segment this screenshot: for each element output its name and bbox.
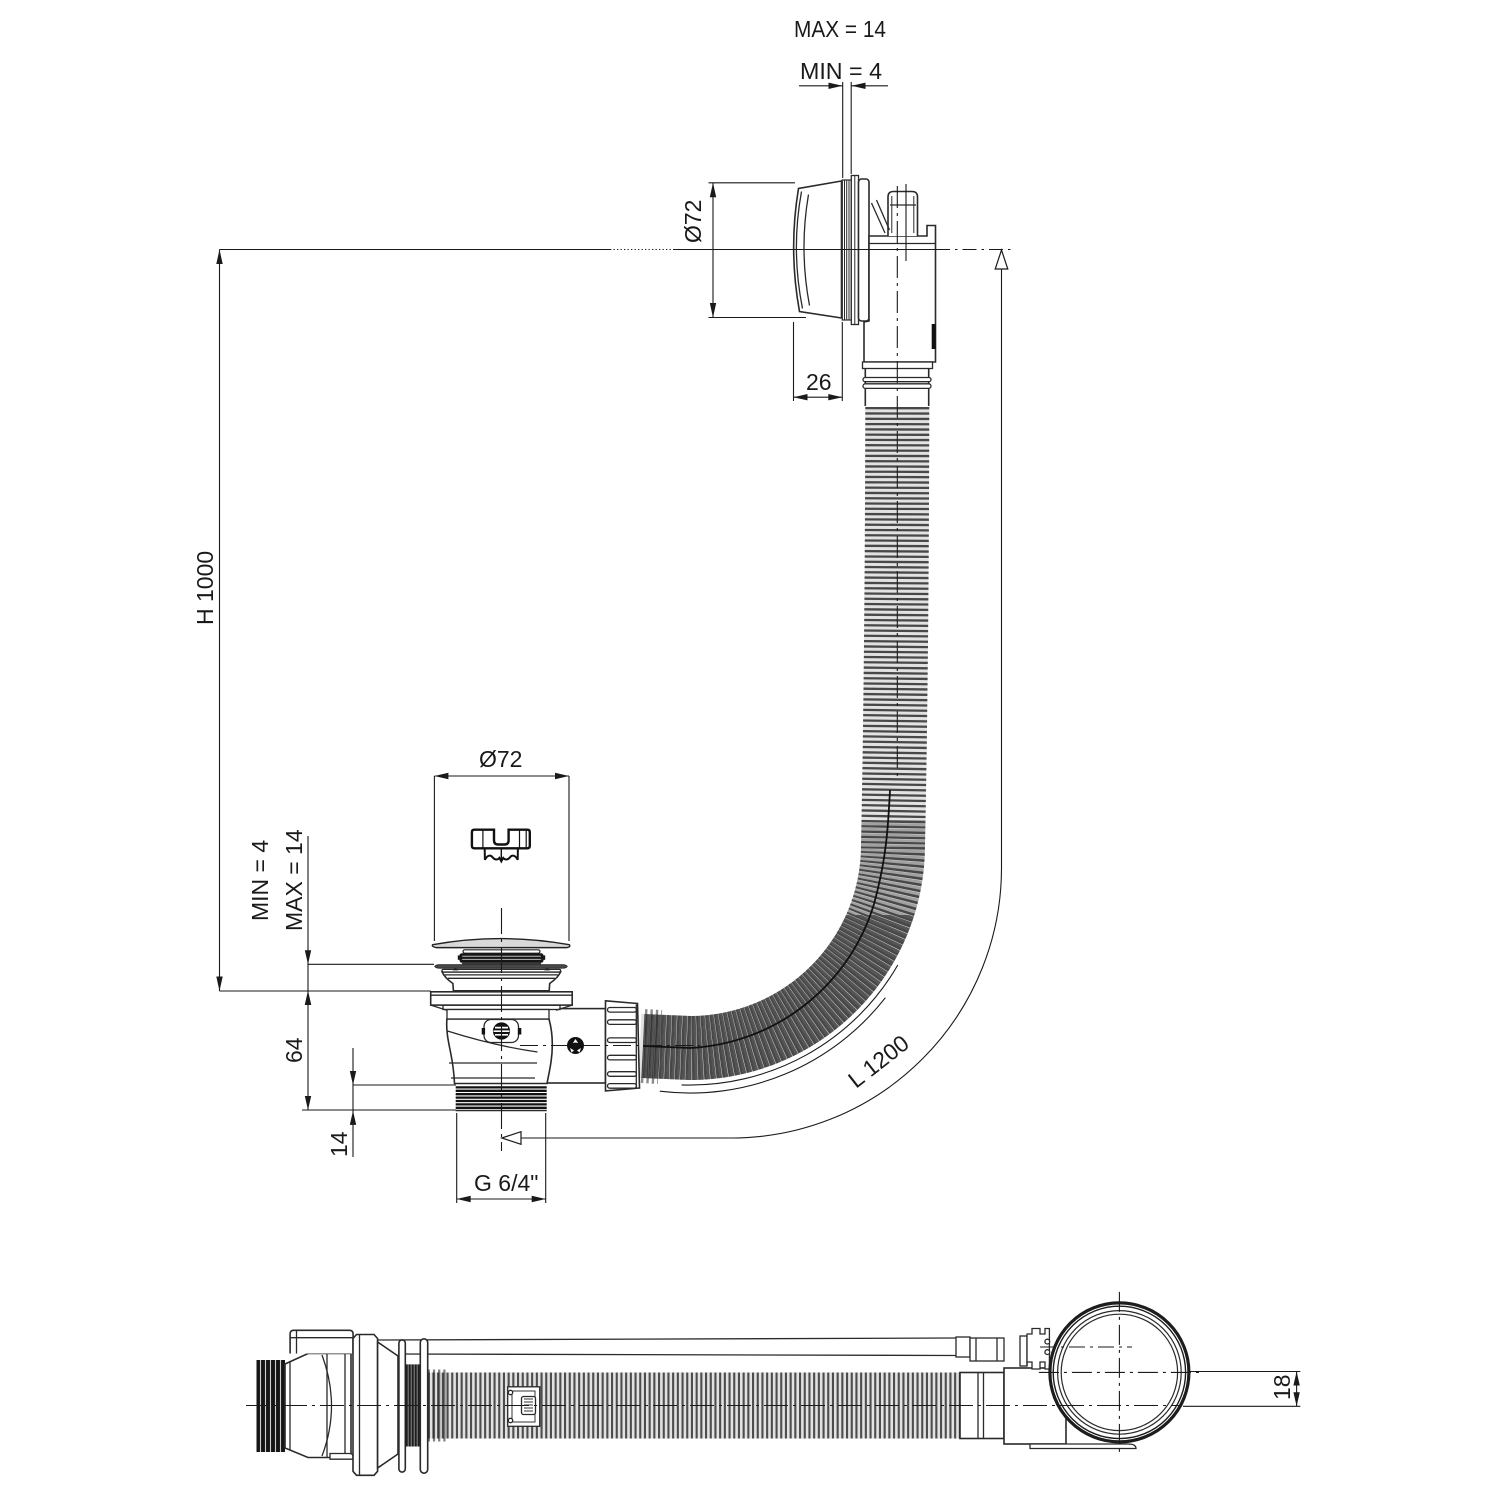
svg-text:14: 14: [326, 1131, 352, 1157]
svg-text:MIN = 4: MIN = 4: [800, 58, 882, 84]
svg-text:Ø72: Ø72: [680, 200, 706, 243]
svg-text:18: 18: [1269, 1374, 1295, 1400]
svg-text:MAX = 14: MAX = 14: [281, 829, 307, 931]
svg-text:H 1000: H 1000: [192, 551, 218, 625]
svg-text:Ø72: Ø72: [479, 746, 522, 772]
svg-text:MIN = 4: MIN = 4: [247, 840, 273, 921]
svg-text:64: 64: [281, 1037, 307, 1063]
svg-text:MAX = 14: MAX = 14: [794, 16, 886, 42]
svg-text:G 6/4": G 6/4": [474, 1170, 538, 1196]
svg-text:26: 26: [806, 369, 832, 395]
